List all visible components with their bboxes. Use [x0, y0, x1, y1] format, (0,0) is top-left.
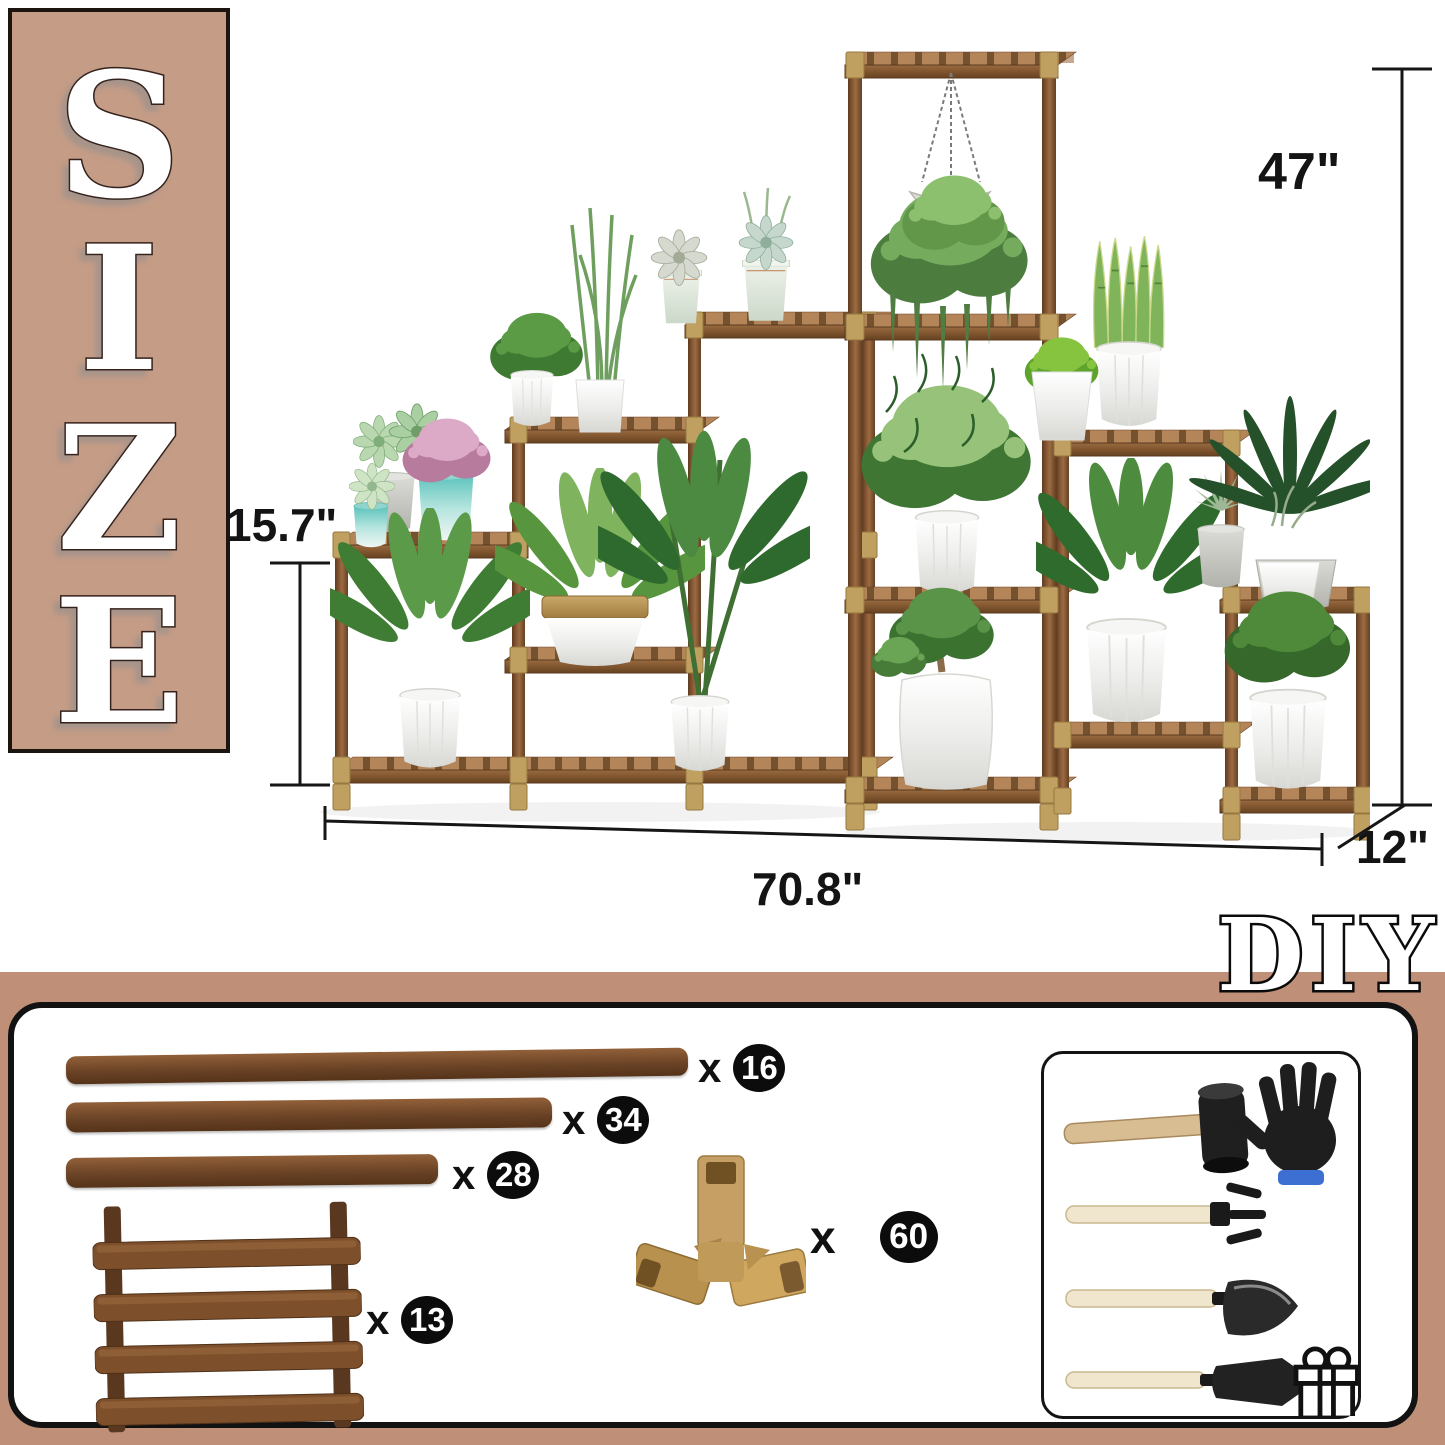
- shovel-icon: [1066, 1280, 1298, 1336]
- potted-calathea: [862, 354, 1031, 593]
- diy-text: DIY: [1217, 896, 1440, 1008]
- plant-stand-illustration: [250, 40, 1370, 860]
- qty-badge: 28: [487, 1151, 539, 1199]
- dimension-width: 70.8": [752, 866, 863, 912]
- potted-succulents-top: [651, 188, 793, 323]
- potted-bush: [490, 313, 583, 426]
- qty-slat-panel: x 13: [366, 1296, 453, 1344]
- left-plant-stand: [296, 188, 893, 810]
- size-letter: E: [53, 560, 184, 749]
- multiplier-x: x: [698, 1044, 721, 1092]
- qty-connector: x 60: [810, 1210, 938, 1264]
- part-slatted-shelf-panel: [92, 1201, 365, 1433]
- dimension-total-height: 47": [1258, 146, 1341, 198]
- parts-panel: x 16 x 34 x 28 x 13 x 60: [8, 1002, 1418, 1428]
- potted-moss: [1025, 337, 1099, 440]
- dimension-depth: 12": [1356, 824, 1429, 870]
- part-corner-connector: [636, 1154, 806, 1324]
- qty-short-stick: x 28: [452, 1151, 539, 1199]
- size-letter: I: [79, 207, 159, 410]
- multiplier-x: x: [562, 1096, 585, 1144]
- mallet-icon: [1062, 1082, 1250, 1184]
- hanging-plant: [871, 73, 1028, 390]
- potted-boxwood: [1225, 591, 1350, 788]
- part-long-stick: [66, 1048, 688, 1085]
- diy-label: DIY: [1190, 896, 1445, 1008]
- qty-long-stick: x 16: [698, 1044, 785, 1092]
- size-banner-text: S I Z E: [12, 12, 226, 749]
- product-infographic: S I Z E: [0, 0, 1445, 1445]
- multiplier-x: x: [452, 1151, 475, 1199]
- dimension-tier-height: 15.7": [226, 502, 337, 548]
- qty-badge: 60: [880, 1211, 938, 1263]
- part-short-stick: [66, 1154, 438, 1188]
- multiplier-x: x: [366, 1296, 389, 1344]
- gift-icon: [1296, 1349, 1357, 1416]
- trowel-icon: [1066, 1358, 1316, 1406]
- tools-box: [1041, 1051, 1361, 1419]
- rake-icon: [1066, 1182, 1266, 1245]
- height-total-line: [1372, 69, 1432, 805]
- size-banner: S I Z E: [8, 8, 230, 753]
- multiplier-x: x: [810, 1210, 836, 1264]
- part-medium-stick: [66, 1097, 552, 1132]
- potted-snake-plant: [1094, 236, 1164, 426]
- potted-rosemary: [572, 208, 636, 432]
- qty-badge: 34: [597, 1096, 649, 1144]
- qty-badge: 13: [401, 1296, 453, 1344]
- qty-badge: 16: [733, 1044, 785, 1092]
- qty-medium-stick: x 34: [562, 1096, 649, 1144]
